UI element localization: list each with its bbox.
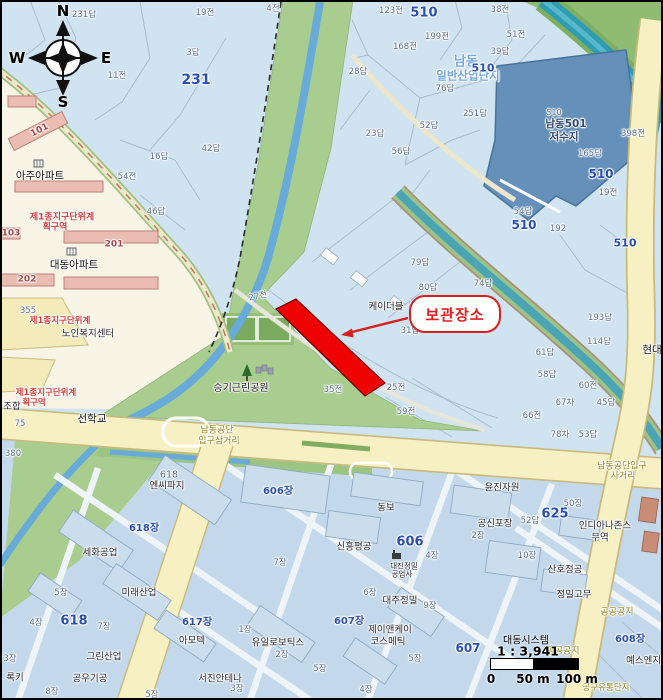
map-label: 4장 <box>359 686 372 695</box>
map-label: 59전 <box>397 408 416 417</box>
map-label: 79답 <box>411 259 430 268</box>
map-label: 38전 <box>491 6 510 15</box>
map-label: 61답 <box>536 349 555 358</box>
map-label: 617장 <box>182 618 212 628</box>
map-label: 35전 <box>324 386 343 395</box>
map-label: 103 <box>2 230 21 239</box>
map-label: 7장 <box>97 623 110 632</box>
map-label: 27전 <box>248 291 268 303</box>
map-label: 625 <box>541 508 568 521</box>
map-label: 5장 <box>145 691 158 700</box>
map-label: 3장 <box>3 655 16 664</box>
compass-south-label: S <box>58 93 69 111</box>
compass-east-label: E <box>101 49 111 67</box>
map-label: 제1종지구단위계 <box>30 317 91 326</box>
map-label: 5장 <box>313 665 326 674</box>
map-label: 165답 <box>578 150 602 159</box>
map-label: 5장 <box>54 589 67 598</box>
cadastral-map: 231답19전4전123전51038전3답23111전199전51전168전39… <box>0 0 663 700</box>
map-label: 유일로보틱스 <box>252 638 304 648</box>
map-label: 획구역 <box>22 399 45 408</box>
map-label: 19전 <box>599 189 618 198</box>
map-label: 45답 <box>597 399 616 408</box>
map-label: 53답 <box>579 431 598 440</box>
map-label: 3장 <box>230 685 243 694</box>
map-label: 52답 <box>420 122 439 131</box>
map-label: 28답 <box>349 68 368 77</box>
map-label: 355 <box>20 307 36 316</box>
map-label: 42답 <box>202 145 221 154</box>
map-label: 510 <box>410 7 437 20</box>
scale-tick-100: 100 m <box>556 672 598 686</box>
map-label: 남동공단입구 <box>597 463 647 472</box>
map-label: 1장 <box>238 626 251 635</box>
map-label: 윤진자원 <box>485 483 520 493</box>
map-label: 코스메틱 <box>371 637 406 647</box>
storage-location-callout: 보관장소 <box>409 295 501 333</box>
map-label: 54답 <box>514 208 533 217</box>
map-label: 23답 <box>366 130 385 139</box>
map-label: 남동501 <box>545 119 586 130</box>
map-label: 114답 <box>587 338 611 347</box>
map-label: 16답 <box>150 153 169 162</box>
map-label: 저수지 <box>550 132 579 143</box>
map-label: 39답 <box>491 48 510 57</box>
map-label: 9장 <box>423 602 436 611</box>
map-label: 607장 <box>334 617 364 627</box>
map-label: 618 <box>60 615 87 628</box>
map-label: 618 <box>160 470 178 480</box>
map-label: 19전 <box>196 9 215 18</box>
map-label: 202 <box>18 276 37 285</box>
map-label: 8장 <box>45 688 58 697</box>
map-label: 사거리 <box>611 473 636 482</box>
map-label: 510 <box>588 168 613 180</box>
map-label: 101 <box>30 123 51 140</box>
map-label: 51전 <box>507 31 526 40</box>
scale-bar-segment-white <box>490 658 535 670</box>
map-label: 3답 <box>186 49 199 58</box>
map-label: 60전 <box>579 382 598 391</box>
map-label: 2장 <box>471 532 484 541</box>
map-label: 예스엔지니 <box>626 656 663 666</box>
map-label: 아모텍 <box>179 636 205 646</box>
map-label: 231 <box>181 73 210 87</box>
map-label: 398전 <box>621 130 645 139</box>
map-label: 신흥평공 <box>337 542 372 552</box>
map-label: 5장 <box>408 655 421 664</box>
map-label: 606 <box>396 536 423 549</box>
map-label: 선학교 <box>78 414 107 425</box>
map-label: 7장 <box>273 559 286 568</box>
map-label: 엔씨파지 <box>150 481 185 491</box>
map-label: 78차 <box>551 431 570 440</box>
map-label: 대동아파트 <box>50 260 98 271</box>
map-label: 58답 <box>538 371 557 380</box>
map-label: 제1종지구단위계 <box>16 389 77 398</box>
map-label: 입구삼거리 <box>198 438 239 447</box>
map-label: 정밀고무 <box>557 590 592 600</box>
map-label: 76답 <box>436 85 455 94</box>
map-label: 미래산업 <box>122 588 157 598</box>
map-label: 동보 <box>377 503 394 513</box>
map-label: 록키 <box>6 673 23 683</box>
map-label: 현대 <box>642 345 661 356</box>
map-label: 산호정공 <box>548 565 583 575</box>
map-label: 4장 <box>29 619 42 628</box>
map-label: 52답 <box>521 517 540 526</box>
map-label: 대주정밀 <box>383 596 418 606</box>
map-label: 획구역 <box>43 224 68 233</box>
map-label: 510 <box>546 109 561 117</box>
map-label: 10장 <box>518 552 537 561</box>
map-label: 노인복지센터 <box>62 329 114 339</box>
map-label: 서진안테나 <box>198 674 242 684</box>
map-label: 승기근린공원 <box>213 384 268 394</box>
map-label: 608장 <box>615 635 645 645</box>
map-label: 2장 <box>275 651 288 660</box>
map-label: 606장 <box>263 487 293 497</box>
map-label: 46답 <box>147 208 166 217</box>
map-label: 231답 <box>72 11 96 20</box>
map-label: 조합 <box>3 402 20 412</box>
map-label: 201 <box>105 241 124 250</box>
map-label: 공신포장 <box>478 519 513 529</box>
map-label: 6장 <box>363 589 376 598</box>
map-label: 공업사 <box>392 570 413 578</box>
map-label: 제1종지구단위계 <box>30 214 94 223</box>
scale-tick-0: 0 <box>487 672 495 686</box>
map-label: 25전 <box>387 384 406 393</box>
map-label: 80답 <box>419 284 438 293</box>
map-label: 510 <box>614 238 637 249</box>
compass-west-label: W <box>9 49 26 67</box>
map-label: 123전 <box>379 7 403 16</box>
compass-north-label: N <box>57 2 70 20</box>
map-label: 193답 <box>588 314 612 323</box>
map-labels-layer: 231답19전4전123전51038전3답23111전199전51전168전39… <box>0 0 663 700</box>
map-label: 510 <box>511 219 536 231</box>
map-label: 그린산업 <box>87 652 122 662</box>
map-label: 510 <box>472 63 495 74</box>
map-label: 공우기공 <box>73 674 108 684</box>
map-label: 제이앤케이 <box>368 625 412 635</box>
map-label: 380 <box>5 450 21 459</box>
map-label: 251답 <box>463 110 487 119</box>
map-label: 607 <box>455 642 480 654</box>
map-label: 공공공지 <box>600 609 633 618</box>
map-label: 618장 <box>129 524 159 534</box>
map-label: 4전 <box>266 5 279 14</box>
map-label: 199전 <box>425 33 449 42</box>
map-label: 인디아나존스 <box>579 521 631 531</box>
map-label: 4장 <box>425 552 438 561</box>
map-label: 67차 <box>556 399 575 408</box>
map-label: 11전 <box>108 72 127 81</box>
map-label: 아주아파트 <box>16 171 64 182</box>
scale-ratio: 1 : 3,941 <box>497 644 559 659</box>
map-label: 168전 <box>393 43 417 52</box>
map-label: 54전 <box>118 173 137 182</box>
map-label: 남동공단 <box>200 427 233 436</box>
scale-bar-segment-black <box>533 658 579 670</box>
map-label: 케이더블 <box>369 302 404 312</box>
map-label: 75 <box>15 420 26 429</box>
map-label: 세화공업 <box>83 548 118 558</box>
map-label: 56답 <box>392 148 411 157</box>
map-label: 66전 <box>523 412 542 421</box>
map-label: 74답 <box>474 280 493 289</box>
map-label: 192 <box>550 225 566 234</box>
scale-tick-50: 50 m <box>516 672 549 686</box>
map-label: 무역 <box>591 533 608 543</box>
